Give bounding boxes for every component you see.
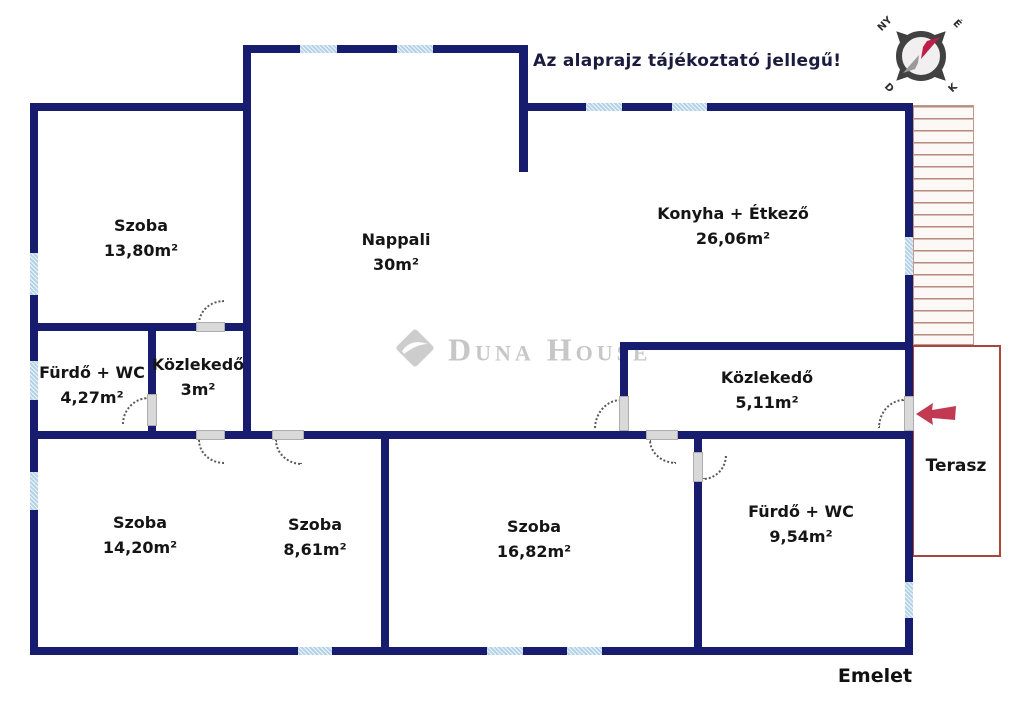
door-leaf <box>196 322 225 332</box>
wall-mid-main <box>30 431 913 439</box>
wall-konyha-top <box>519 103 913 111</box>
room-label-furdo-wc-nagy: Fürdő + WC 9,54m² <box>748 499 854 549</box>
room-name: Szoba <box>283 512 346 537</box>
room-label-furdo-wc-kis: Fürdő + WC 4,27m² <box>39 360 145 410</box>
disclaimer-title: Az alaprajz tájékoztató jellegű! <box>533 51 841 71</box>
wall-szoba-top <box>30 103 251 111</box>
room-name: Szoba <box>497 514 571 539</box>
room-area: 30m² <box>362 252 431 277</box>
room-name: Fürdő + WC <box>39 360 145 385</box>
window-marker <box>905 237 913 275</box>
window-marker <box>586 103 622 111</box>
room-area: 8,61m² <box>283 537 346 562</box>
compass-label-south: D <box>882 81 896 95</box>
room-label-szoba-felso: Szoba 13,80m² <box>104 213 178 263</box>
door-leaf <box>619 396 629 431</box>
room-label-nappali: Nappali 30m² <box>362 227 431 277</box>
room-label-szoba-kozepso: Szoba 8,61m² <box>283 512 346 562</box>
room-name: Közlekedő <box>721 365 813 390</box>
room-area: 26,06m² <box>657 226 809 251</box>
window-marker <box>567 647 602 655</box>
room-label-szoba-also: Szoba 16,82m² <box>497 514 571 564</box>
room-area: 5,11m² <box>721 390 813 415</box>
wall-szoba-szoba <box>381 439 389 655</box>
wall-outer-bottom <box>30 647 913 655</box>
wall-konyha-bottom <box>620 342 913 350</box>
room-name: Nappali <box>362 227 431 252</box>
floorplan-canvas: Az alaprajz tájékoztató jellegű! NY É D … <box>0 0 1024 704</box>
room-name: Szoba <box>104 213 178 238</box>
room-name: Közlekedő <box>152 352 244 377</box>
room-area: 9,54m² <box>748 524 854 549</box>
brand-logo-icon <box>392 325 438 371</box>
door-swing-arc <box>275 440 302 465</box>
window-marker <box>487 647 523 655</box>
door-leaf <box>904 396 914 431</box>
room-area: 16,82m² <box>497 539 571 564</box>
window-marker <box>30 253 38 295</box>
door-leaf <box>693 452 703 482</box>
compass-label-east: K <box>947 81 961 95</box>
room-name: Fürdő + WC <box>748 499 854 524</box>
terrace-label: Terasz <box>926 456 987 476</box>
window-marker <box>30 472 38 510</box>
door-swing-arc <box>649 440 676 464</box>
window-marker <box>397 45 433 53</box>
window-marker <box>672 103 707 111</box>
staircase <box>913 105 974 345</box>
window-marker <box>905 582 913 618</box>
terrace-outline <box>912 345 1001 557</box>
room-name: Konyha + Étkező <box>657 201 809 226</box>
room-label-szoba-balalso: Szoba 14,20m² <box>103 510 177 560</box>
door-swing-arc <box>198 440 224 464</box>
compass-icon: NY É D K <box>869 8 973 112</box>
window-marker <box>300 45 337 53</box>
room-area: 4,27m² <box>39 385 145 410</box>
room-area: 13,80m² <box>104 238 178 263</box>
compass-label-west: NY <box>876 14 895 33</box>
door-swing-arc <box>703 455 727 480</box>
door-swing-arc <box>878 399 904 428</box>
room-label-konyha-etkezo: Konyha + Étkező 26,06m² <box>657 201 809 251</box>
door-swing-arc <box>198 300 224 324</box>
room-area: 14,20m² <box>103 535 177 560</box>
door-leaf <box>196 430 225 440</box>
window-marker <box>30 361 38 400</box>
room-area: 3m² <box>152 377 244 402</box>
door-swing-arc <box>594 399 621 429</box>
door-leaf <box>272 430 304 440</box>
entry-arrow-icon <box>916 402 958 426</box>
room-label-kozlekedo-kis: Közlekedő 3m² <box>152 352 244 402</box>
compass-label-north: É <box>950 17 964 31</box>
room-label-kozlekedo-nagy: Közlekedő 5,11m² <box>721 365 813 415</box>
wall-nappali-left <box>243 45 251 439</box>
window-marker <box>298 647 332 655</box>
door-leaf <box>646 430 678 440</box>
floor-label: Emelet <box>838 665 912 687</box>
wall-nappali-top <box>243 45 528 53</box>
wall-outer-right <box>905 103 913 655</box>
room-name: Szoba <box>103 510 177 535</box>
